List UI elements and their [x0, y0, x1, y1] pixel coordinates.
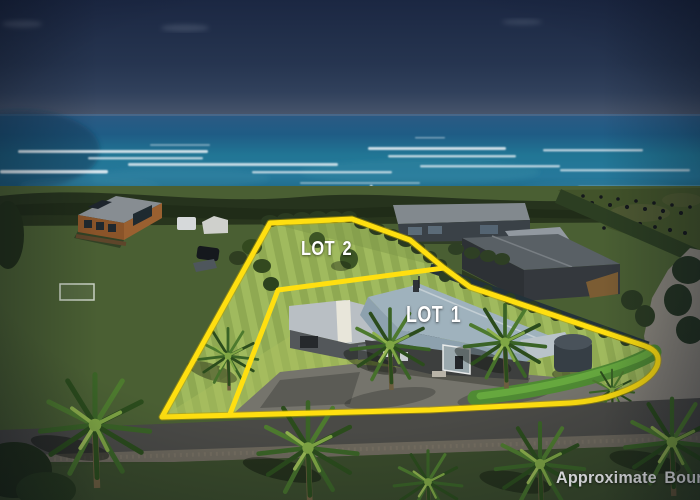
caravan [177, 217, 196, 230]
goal-frame [60, 284, 94, 300]
horizon-line [0, 114, 700, 116]
chimney [413, 280, 419, 292]
lot2-label: LOT 2 [301, 239, 352, 259]
sky [0, 0, 700, 116]
aerial-property-photo: LOT 2 LOT 1 Approximate Boundaries [0, 0, 700, 500]
lot1-label: LOT 1 [406, 303, 461, 326]
steps [432, 371, 446, 377]
approximate-boundaries-disclaimer: Approximate Boundaries [556, 469, 700, 486]
shed-skylight-strip [336, 300, 352, 344]
